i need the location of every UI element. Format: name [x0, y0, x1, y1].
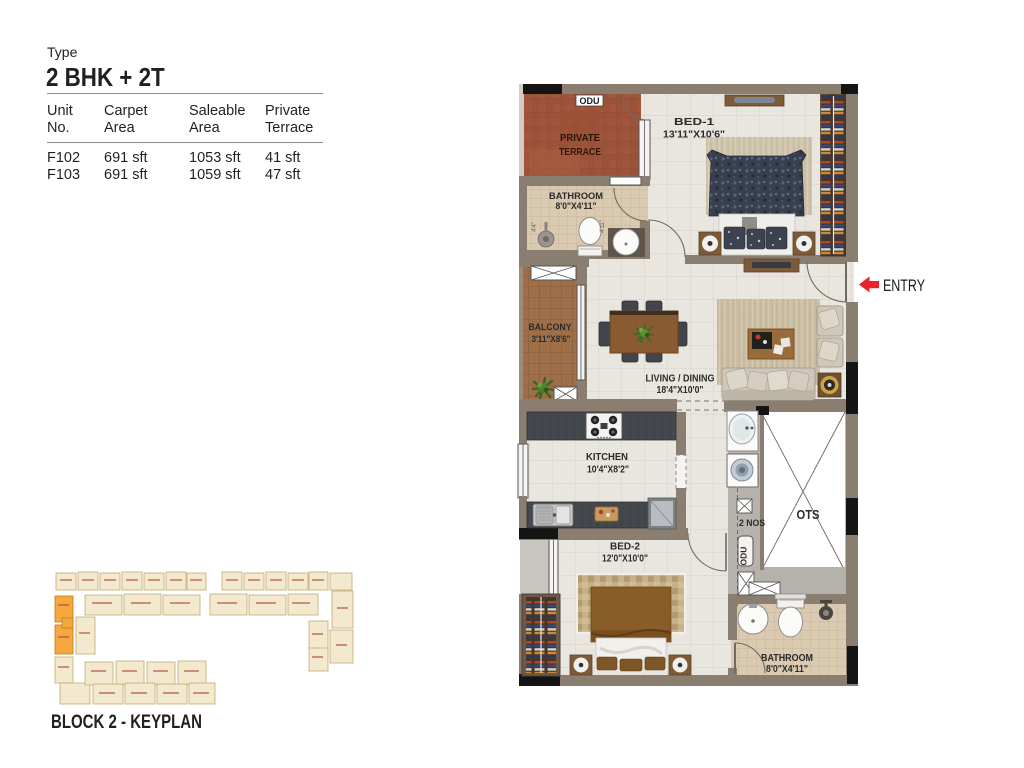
svg-text:TERRACE: TERRACE [559, 147, 601, 158]
svg-text:8'0"X4'11": 8'0"X4'11" [766, 664, 808, 675]
svg-text:BED-2: BED-2 [610, 541, 640, 553]
svg-text:2 NOS: 2 NOS [739, 518, 765, 529]
svg-text:8'0"X4'11": 8'0"X4'11" [556, 201, 597, 211]
svg-text:12'0"X10'0": 12'0"X10'0" [602, 553, 648, 565]
svg-text:BATHROOM: BATHROOM [549, 191, 603, 201]
svg-text:10'4"X8'2": 10'4"X8'2" [587, 465, 629, 476]
svg-text:ODU: ODU [739, 547, 749, 566]
svg-text:ODU: ODU [580, 96, 600, 106]
svg-text:ENTRY: ENTRY [883, 276, 925, 295]
svg-text:3'11"X8'6": 3'11"X8'6" [532, 334, 571, 344]
svg-text:4'11": 4'11" [600, 220, 606, 233]
svg-text:BALCONY: BALCONY [529, 322, 572, 332]
svg-text:OTS: OTS [797, 508, 820, 522]
svg-text:BATHROOM: BATHROOM [761, 653, 813, 664]
svg-text:18'4"X10'0": 18'4"X10'0" [657, 384, 704, 396]
svg-text:LIVING / DINING: LIVING / DINING [646, 373, 715, 385]
svg-text:4'4": 4'4" [532, 222, 538, 232]
svg-text:BED-1: BED-1 [674, 116, 714, 128]
svg-text:PRIVATE: PRIVATE [560, 133, 600, 144]
svg-text:13'11"X10'6": 13'11"X10'6" [663, 129, 725, 141]
svg-text:KITCHEN: KITCHEN [586, 452, 628, 463]
